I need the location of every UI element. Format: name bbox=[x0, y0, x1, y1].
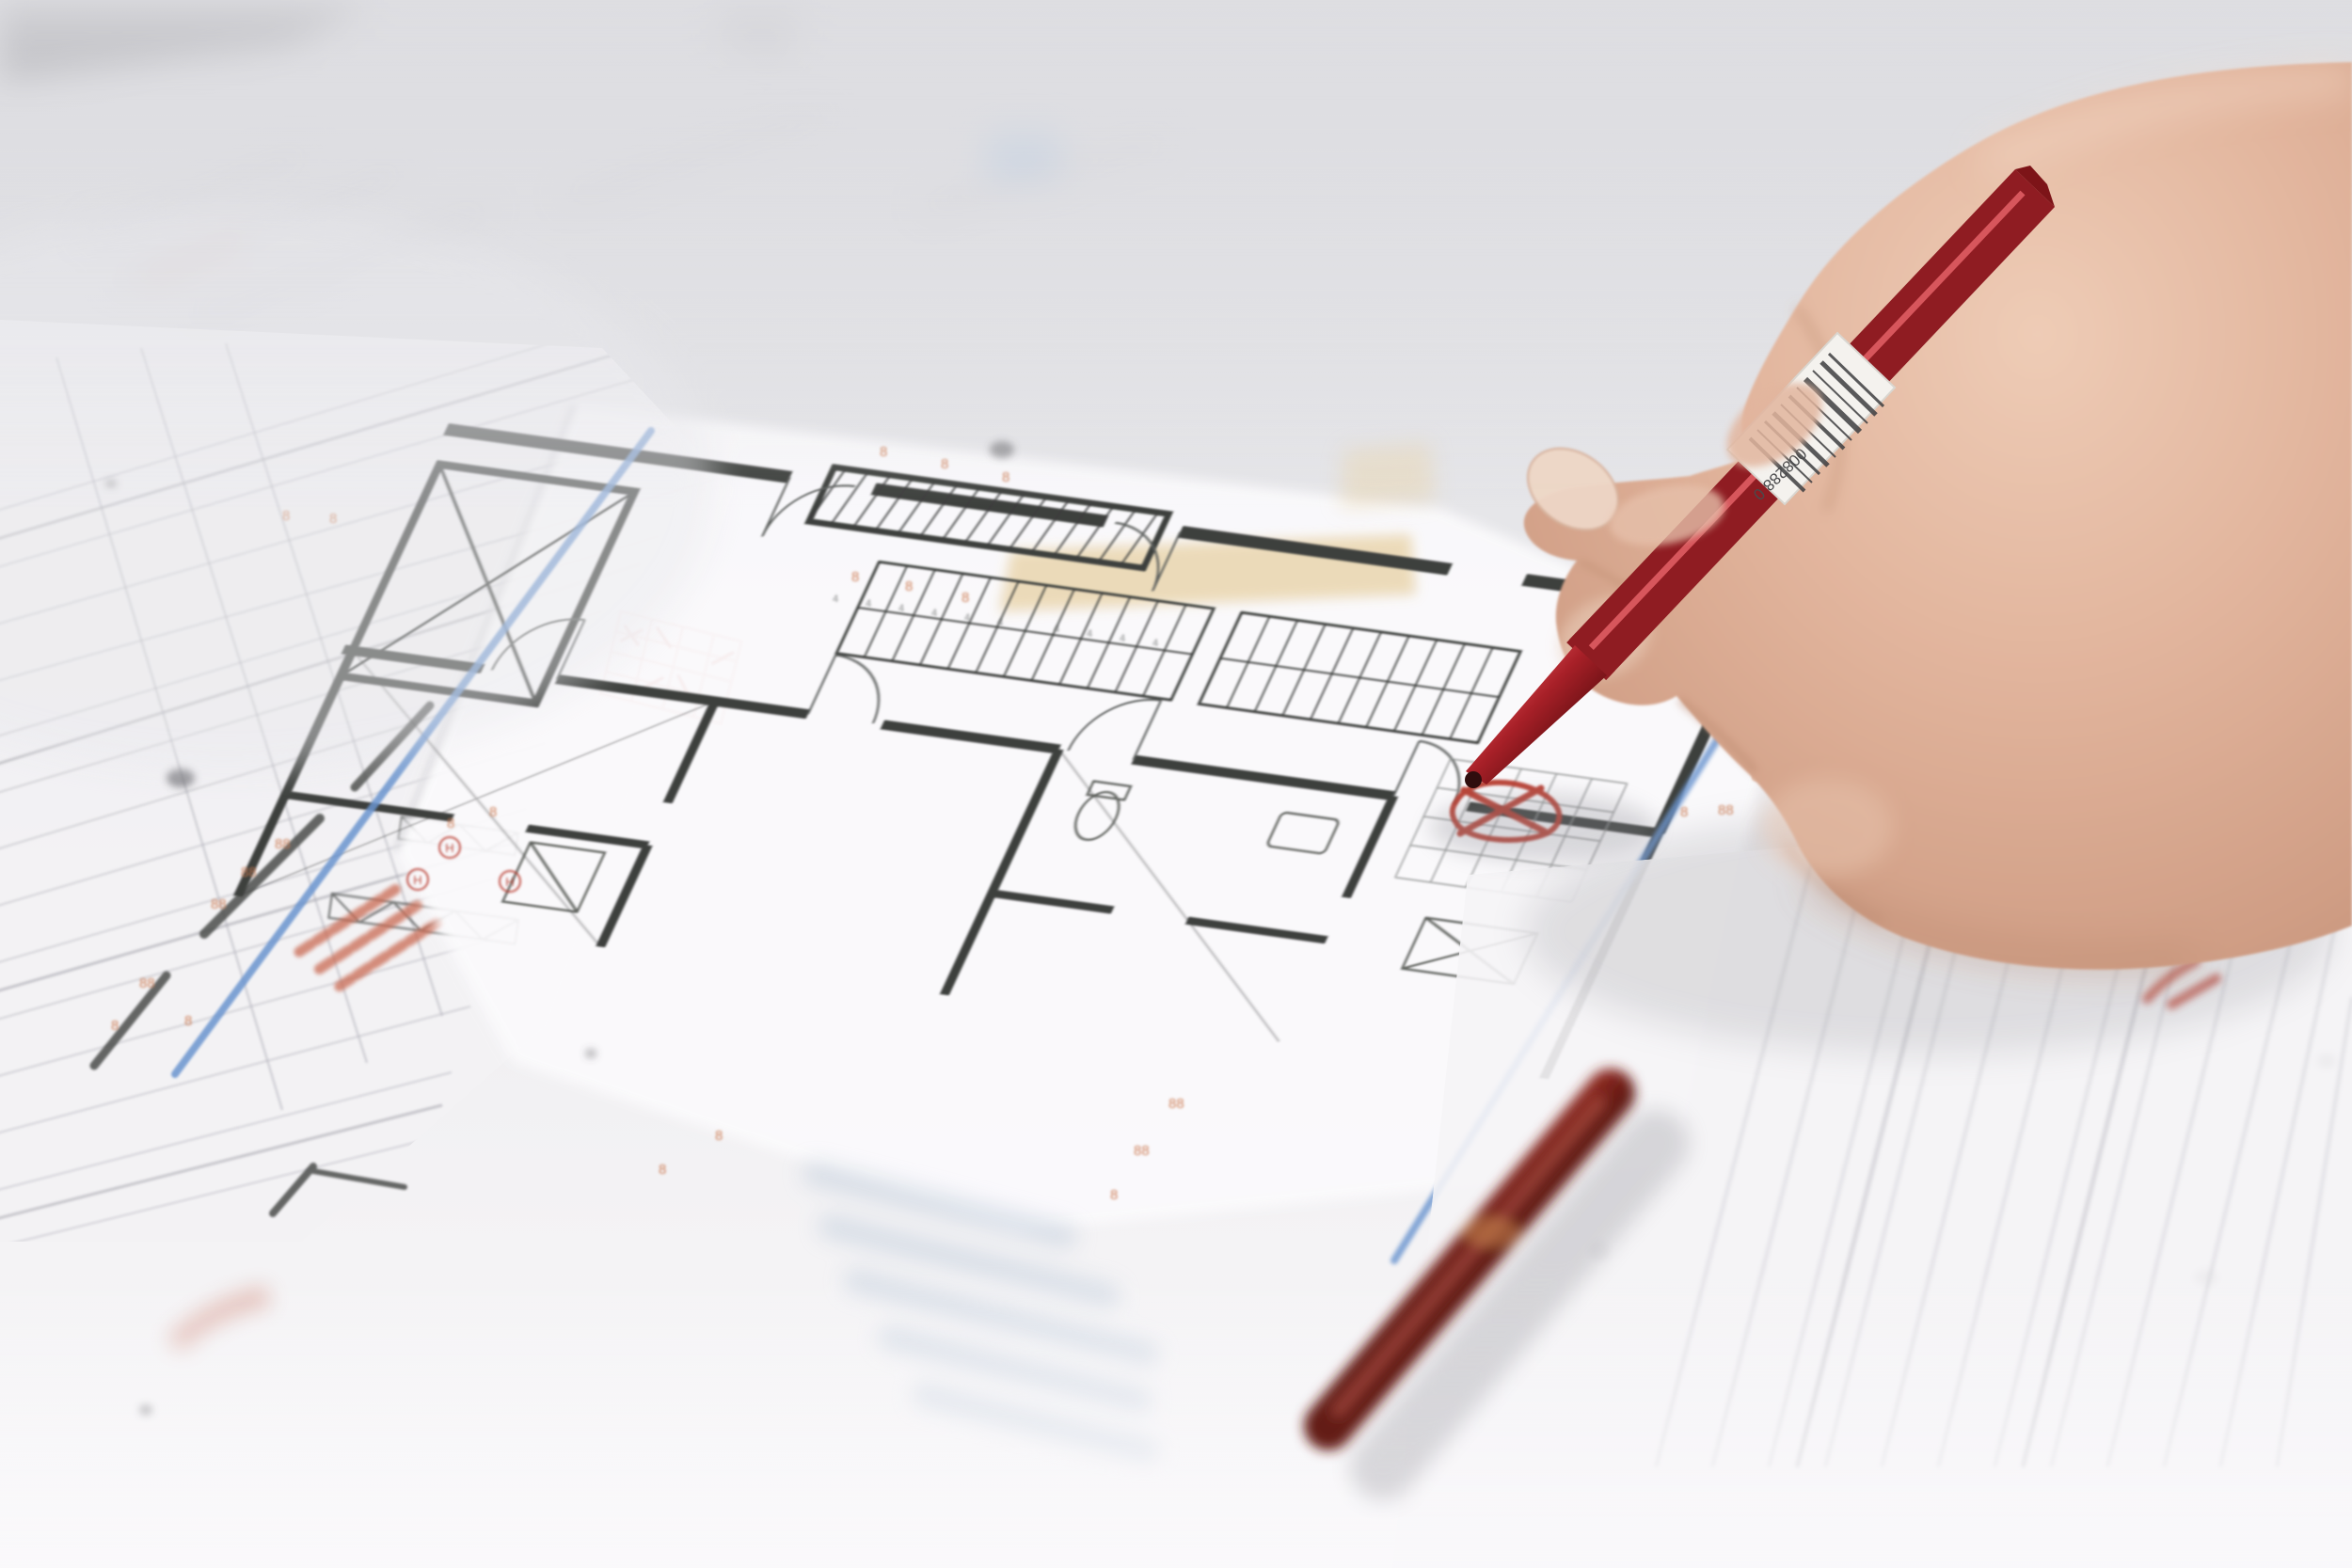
dimension-mark: 8 bbox=[1680, 804, 1688, 820]
defocus-bottom bbox=[0, 1260, 2352, 1568]
cell-tick-digit: 4 bbox=[931, 608, 937, 619]
dimension-mark: 8 bbox=[851, 569, 859, 585]
dimension-mark: 8 bbox=[905, 578, 913, 594]
cell-tick-digit: 4 bbox=[1120, 633, 1125, 644]
dimension-mark: 8 bbox=[447, 816, 454, 832]
dimension-mark: 88 bbox=[275, 836, 291, 852]
dimension-mark: 8 bbox=[184, 1013, 192, 1029]
red-circle-symbol-letter: H bbox=[445, 841, 453, 855]
dimension-mark: 88 bbox=[1168, 1096, 1184, 1112]
dimension-mark: 88 bbox=[1718, 802, 1734, 818]
cell-tick-digit: 4 bbox=[964, 612, 970, 624]
cell-tick-digit: 4 bbox=[866, 598, 871, 610]
photo-architect-marking-blueprints: 888888888888888888888888888888888 444444… bbox=[0, 0, 2352, 1568]
dimension-mark: 8 bbox=[715, 1128, 723, 1144]
cell-tick-digit: 4 bbox=[833, 594, 838, 605]
dimension-mark: 88 bbox=[139, 975, 155, 991]
dimension-mark: 88 bbox=[241, 864, 257, 880]
dimension-mark: 8 bbox=[111, 1018, 119, 1034]
pen-tip-nib bbox=[1465, 771, 1482, 788]
paper-speck bbox=[585, 1049, 596, 1058]
dimension-mark: 8 bbox=[659, 1162, 666, 1178]
dimension-mark: 88 bbox=[1134, 1143, 1150, 1159]
pen-on-table-glint bbox=[1463, 1217, 1519, 1247]
cell-tick-digit: 4 bbox=[1087, 628, 1092, 640]
dimension-mark: 8 bbox=[961, 590, 969, 606]
cell-tick-digit: 4 bbox=[1054, 624, 1059, 635]
ring-knuckle-highlight bbox=[1761, 779, 1893, 877]
red-circle-symbol-letter: H bbox=[413, 873, 421, 887]
cell-tick-digit: 4 bbox=[997, 617, 1003, 628]
red-circle-symbol-letter: H bbox=[505, 875, 514, 889]
dimension-mark: 8 bbox=[1110, 1187, 1118, 1203]
cell-tick-digit: 4 bbox=[898, 603, 904, 614]
dimension-mark: 8 bbox=[489, 804, 497, 820]
scene-canvas: 888888888888888888888888888888888 444444… bbox=[0, 0, 2352, 1568]
paper-speck bbox=[167, 768, 195, 787]
dimension-mark: 88 bbox=[211, 896, 227, 912]
cell-tick-digit: 4 bbox=[1152, 638, 1158, 649]
